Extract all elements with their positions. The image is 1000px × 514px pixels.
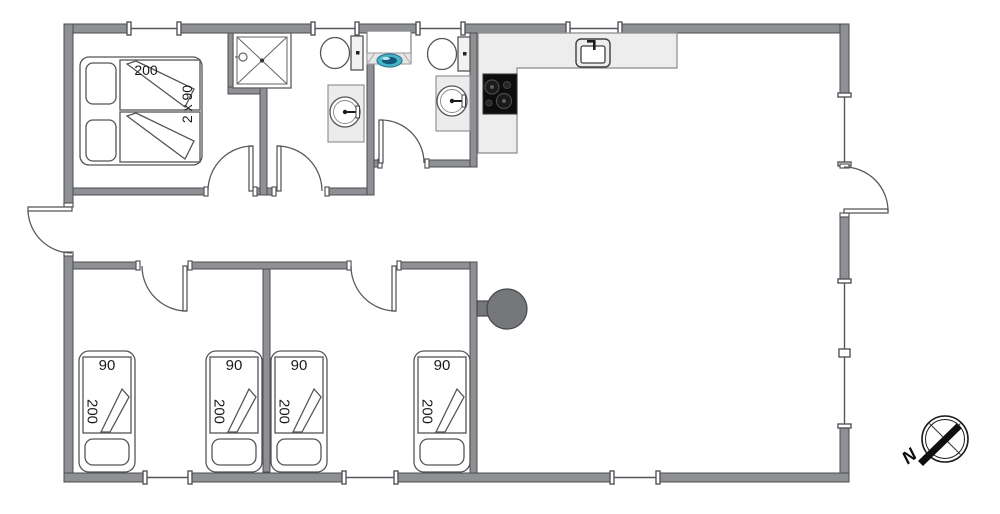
window-icon bbox=[342, 471, 398, 484]
washbasin-icon bbox=[328, 85, 364, 142]
single-bed-length-label: 200 bbox=[420, 392, 435, 432]
toilet-icon bbox=[428, 37, 471, 71]
window-icon bbox=[311, 22, 359, 35]
washbasin-icon bbox=[436, 76, 470, 131]
door-icon-bedroom3 bbox=[351, 266, 396, 311]
door-icon-bedroom2 bbox=[142, 266, 187, 311]
window-icon bbox=[610, 471, 660, 484]
window-icon bbox=[127, 22, 181, 35]
single-bed-width-label: 90 bbox=[422, 358, 462, 373]
compass-rose-icon bbox=[918, 416, 968, 466]
single-bed-width-label: 90 bbox=[214, 358, 254, 373]
floor-plan: 200 2 x 90 90 200 90 200 90 200 90 200 N bbox=[0, 0, 1000, 514]
single-bed-length-label: 200 bbox=[277, 392, 292, 432]
door-icon-terrace bbox=[844, 167, 888, 213]
shower-cabin-icon bbox=[233, 33, 291, 88]
door-jambs bbox=[64, 159, 849, 270]
single-bed-length-label: 200 bbox=[85, 392, 100, 432]
window-icon bbox=[143, 471, 192, 484]
window-icon bbox=[416, 22, 465, 35]
door-icon-bathroom bbox=[277, 146, 322, 191]
door-icon-bedroom1 bbox=[208, 146, 253, 191]
wood-stove-icon bbox=[477, 289, 527, 329]
window-icon bbox=[838, 279, 851, 428]
door-icon-entrance bbox=[28, 207, 72, 253]
double-bed-width-label: 2 x 90 bbox=[180, 76, 194, 132]
double-bed-length-label: 200 bbox=[126, 63, 166, 77]
single-bed-length-label: 200 bbox=[212, 392, 227, 432]
window-icon bbox=[838, 93, 851, 166]
door-icon-laundry bbox=[379, 120, 424, 163]
single-bed-width-label: 90 bbox=[87, 358, 127, 373]
cooktop-icon bbox=[483, 74, 517, 114]
single-bed-width-label: 90 bbox=[279, 358, 319, 373]
toilet-icon bbox=[321, 36, 364, 70]
kitchen-sink-icon bbox=[576, 39, 610, 67]
washing-machine-icon bbox=[367, 31, 411, 67]
